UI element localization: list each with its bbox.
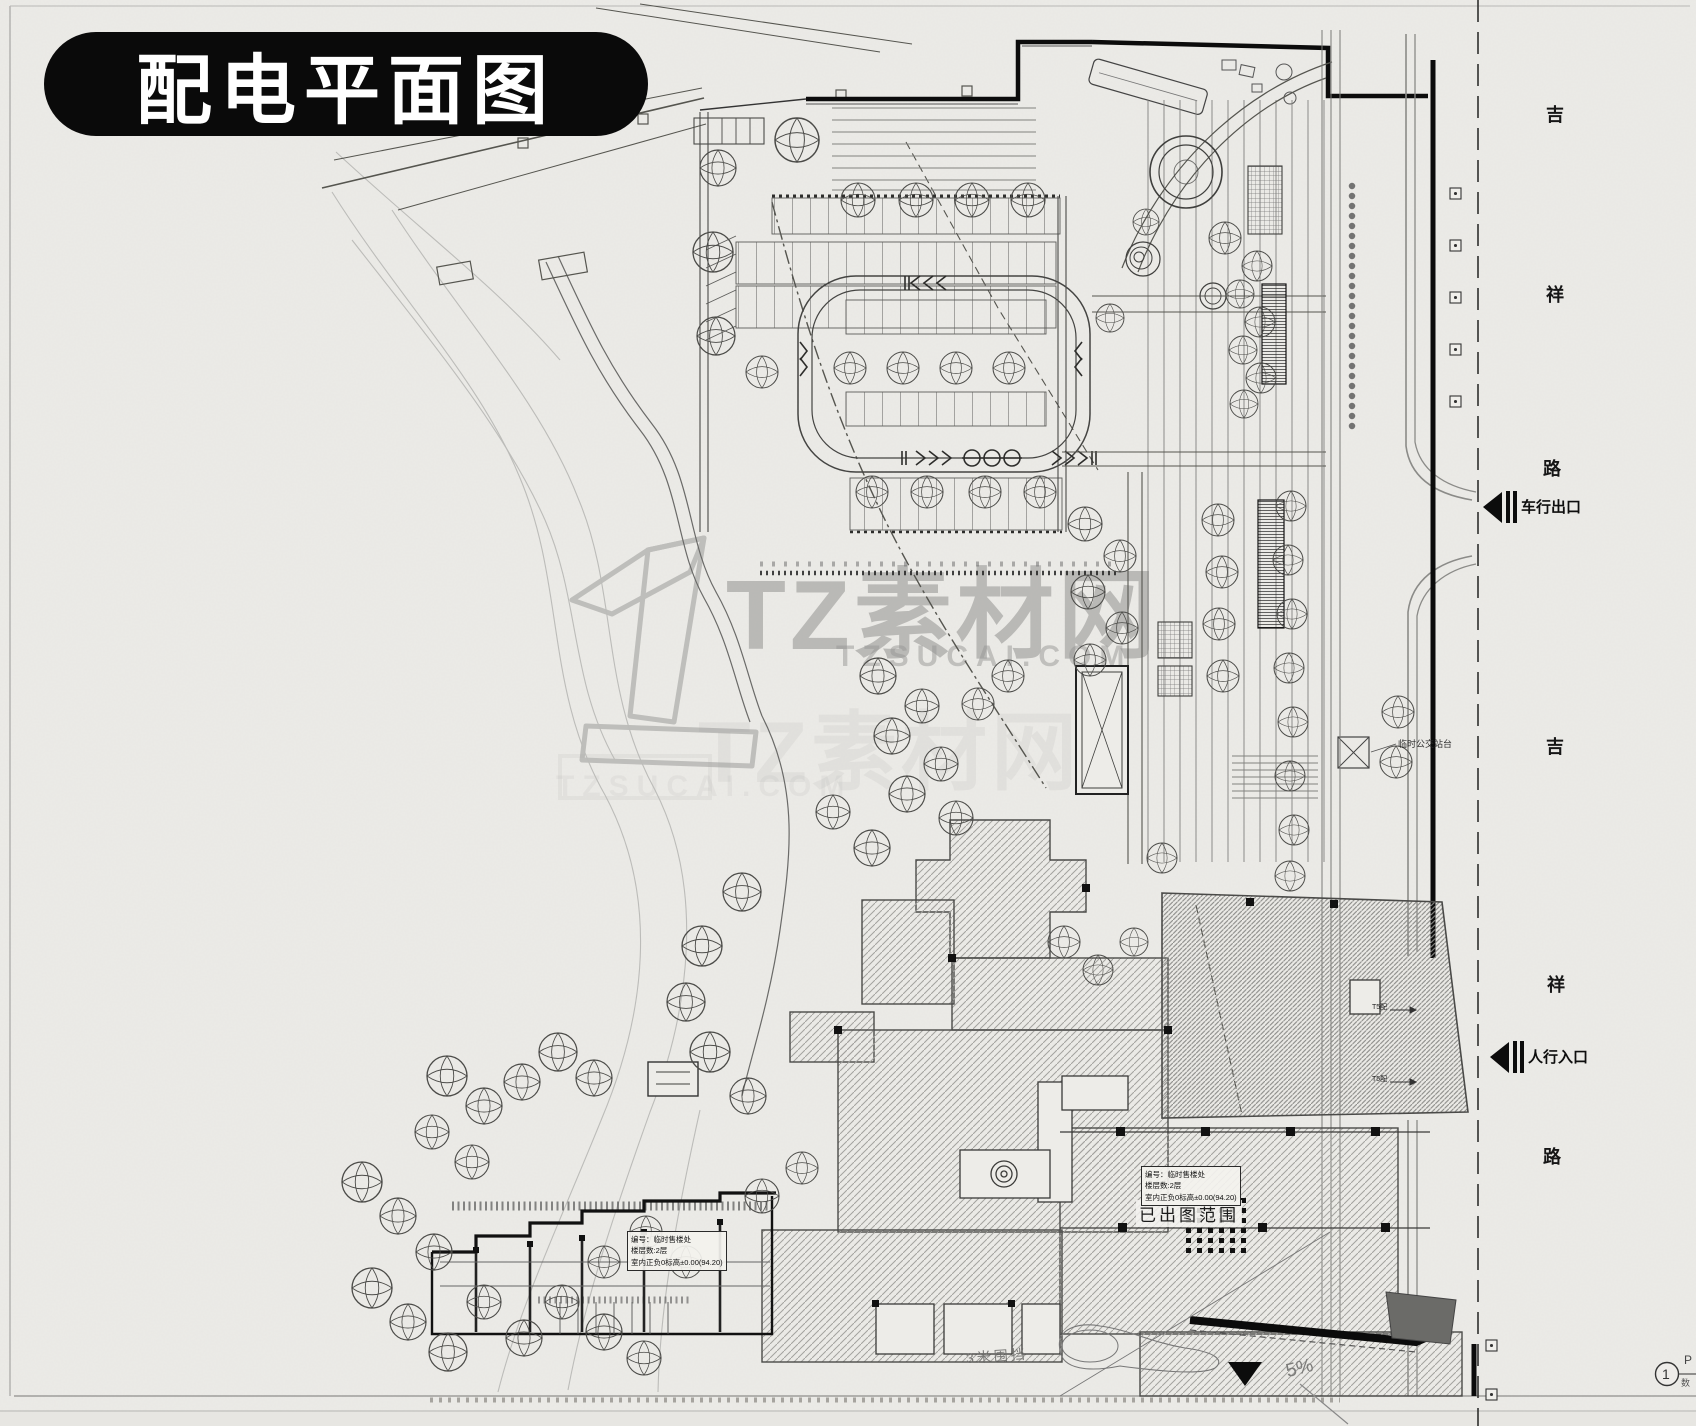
note-line: 室内正负0标高±0.00(94.20) (631, 1257, 723, 1268)
slope-label: 5% (1284, 1355, 1316, 1383)
road-label-lu-2: 路 (1543, 1148, 1561, 1166)
note-line: 编号：临时售楼处 (631, 1234, 723, 1245)
drawing-title: 配电平面图 (136, 29, 556, 139)
road-label-lu-1: 路 (1543, 460, 1561, 478)
pedestrian-entry-label: 人行入口 (1528, 1050, 1588, 1065)
building-note-left: 编号：临时售楼处 楼层数:2层 室内正负0标高±0.00(94.20) (627, 1231, 727, 1271)
road-label-xiang-2: 祥 (1547, 976, 1565, 994)
drawing-title-pill: 配电平面图 (44, 32, 648, 136)
note-line: 楼层数:2层 (631, 1245, 723, 1256)
note-line: 楼层数:2层 (1145, 1180, 1237, 1191)
scanned-site-plan: TZ素材网 TZSUCAI.COM TZ素材网 TZSUCAI.COM (0, 0, 1696, 1426)
detail-bubble-number: 1 (1662, 1366, 1670, 1382)
annotation-text-layer: 吉 祥 路 吉 祥 路 车行出口 人行入口 已出图范围 3米围挡 5% 临时公交… (0, 0, 1696, 1426)
road-label-xiang-1: 祥 (1546, 286, 1564, 304)
road-label-ji-1: 吉 (1546, 106, 1564, 124)
note-line: 室内正负0标高±0.00(94.20) (1145, 1192, 1237, 1203)
bus-platform-label: 临时公交站台 (1398, 737, 1452, 750)
hoarding-label: 3米围挡 (965, 1344, 1028, 1368)
building-note-right: 编号：临时售楼处 楼层数:2层 室内正负0标高±0.00(94.20) (1141, 1166, 1241, 1206)
note-line: 编号：临时售楼处 (1145, 1169, 1237, 1180)
t5-feeder-label-a: T5配 (1372, 1004, 1387, 1011)
vehicle-exit-label: 车行出口 (1521, 500, 1581, 515)
t5-feeder-label-b: T5配 (1372, 1076, 1387, 1083)
detail-bubble-subtext: 数 (1681, 1376, 1690, 1389)
detail-bubble-code: P (1684, 1353, 1692, 1367)
road-label-ji-2: 吉 (1546, 738, 1564, 756)
